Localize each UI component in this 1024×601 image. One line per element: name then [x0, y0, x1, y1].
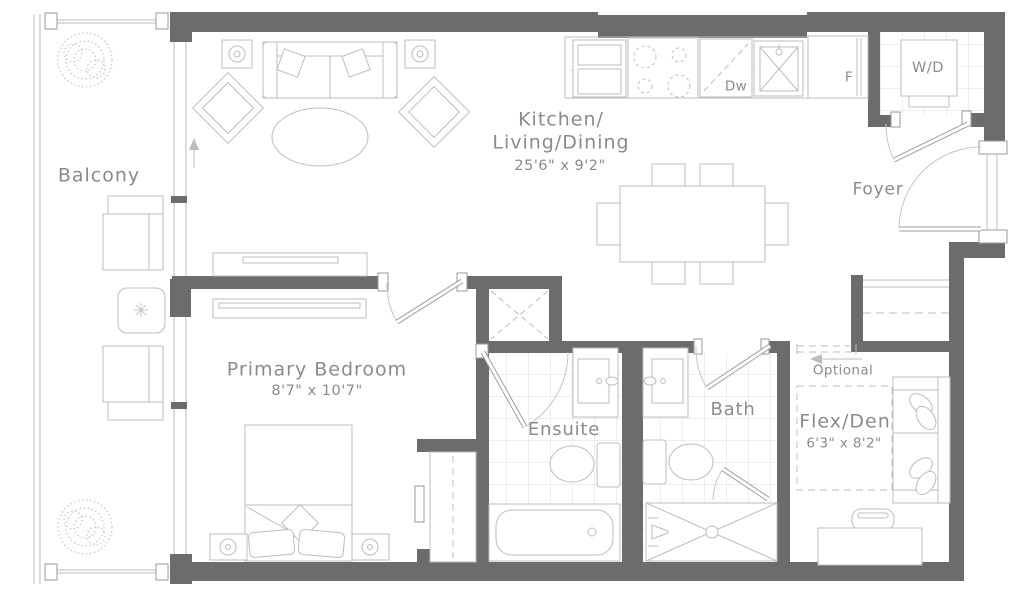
railing-post: [45, 564, 57, 580]
foyer-closet: [863, 280, 949, 313]
bedroom-door: [387, 281, 462, 322]
dresser: [213, 299, 366, 318]
cooktop: [628, 38, 698, 98]
optional-label: Optional: [813, 364, 873, 378]
bedroom-furniture: [210, 299, 389, 561]
room-dims-flex-den: 6'3" x 8'2": [806, 437, 881, 451]
end-table-right: [405, 40, 435, 68]
railing-post: [45, 13, 57, 29]
accent-chair-right: [399, 77, 470, 148]
entry-opening: [987, 154, 997, 231]
bath-vanity: [643, 348, 688, 417]
room-label-ensuite: Ensuite: [528, 421, 600, 439]
floor-plan: Balcony Kitchen/ Living/Dining 25'6" x 9…: [0, 0, 1024, 601]
room-label-living-dining: Living/Dining: [492, 134, 629, 153]
desk: [818, 509, 922, 565]
desk-chair: [852, 509, 894, 530]
nightstand-left: [210, 534, 247, 560]
fridge: [808, 36, 868, 98]
room-label-foyer: Foyer: [852, 182, 903, 199]
fridge-label: F: [845, 71, 853, 85]
ensuite-tub: [489, 504, 620, 561]
balcony-chair-top: [103, 196, 163, 270]
flex-sofa: [893, 377, 950, 503]
hall-closet: [491, 291, 548, 339]
balcony-chair-bottom: [103, 346, 163, 420]
sofa: [263, 42, 397, 98]
railing-post: [156, 13, 168, 29]
dining-set: [597, 164, 788, 284]
railing-post: [156, 564, 168, 580]
end-table-left: [222, 40, 252, 68]
bedroom-closet: [430, 452, 476, 562]
slide-direction-arrow: [189, 138, 199, 168]
living-room-furniture: [193, 40, 470, 276]
entry-door: [899, 147, 981, 229]
room-label-primary-bedroom: Primary Bedroom: [227, 361, 407, 380]
kitchen-counter: [565, 36, 868, 98]
room-dims-primary-bedroom: 8'7" x 10'7": [271, 384, 362, 399]
shower: [646, 503, 777, 561]
balcony-table: [118, 288, 165, 333]
dishwasher-label: Dw: [725, 80, 747, 94]
dining-table: [620, 186, 765, 262]
tv-console: [213, 253, 367, 276]
nightstand-right: [352, 534, 389, 560]
room-label-balcony: Balcony: [58, 167, 140, 186]
tree-bottom: [58, 500, 112, 554]
tree-top: [58, 33, 112, 87]
laundry-door: [886, 124, 968, 160]
room-dims-kitchen: 25'6" x 9'2": [514, 159, 605, 174]
washer-dryer-label: W/D: [912, 61, 944, 76]
ensuite-vanity: [573, 348, 618, 417]
floor-plan-drawing: [0, 0, 1024, 601]
room-label-kitchen: Kitchen/: [518, 111, 604, 130]
room-label-bath: Bath: [710, 401, 755, 419]
kitchen-sink: [754, 41, 803, 96]
plant-icon: [134, 303, 148, 317]
balcony-area: [34, 13, 168, 584]
accent-chair-left: [193, 73, 264, 144]
coffee-table: [272, 108, 368, 166]
bed: [245, 425, 352, 561]
room-label-flex-den: Flex/Den: [799, 413, 891, 432]
oven-cabinet: [573, 40, 626, 97]
